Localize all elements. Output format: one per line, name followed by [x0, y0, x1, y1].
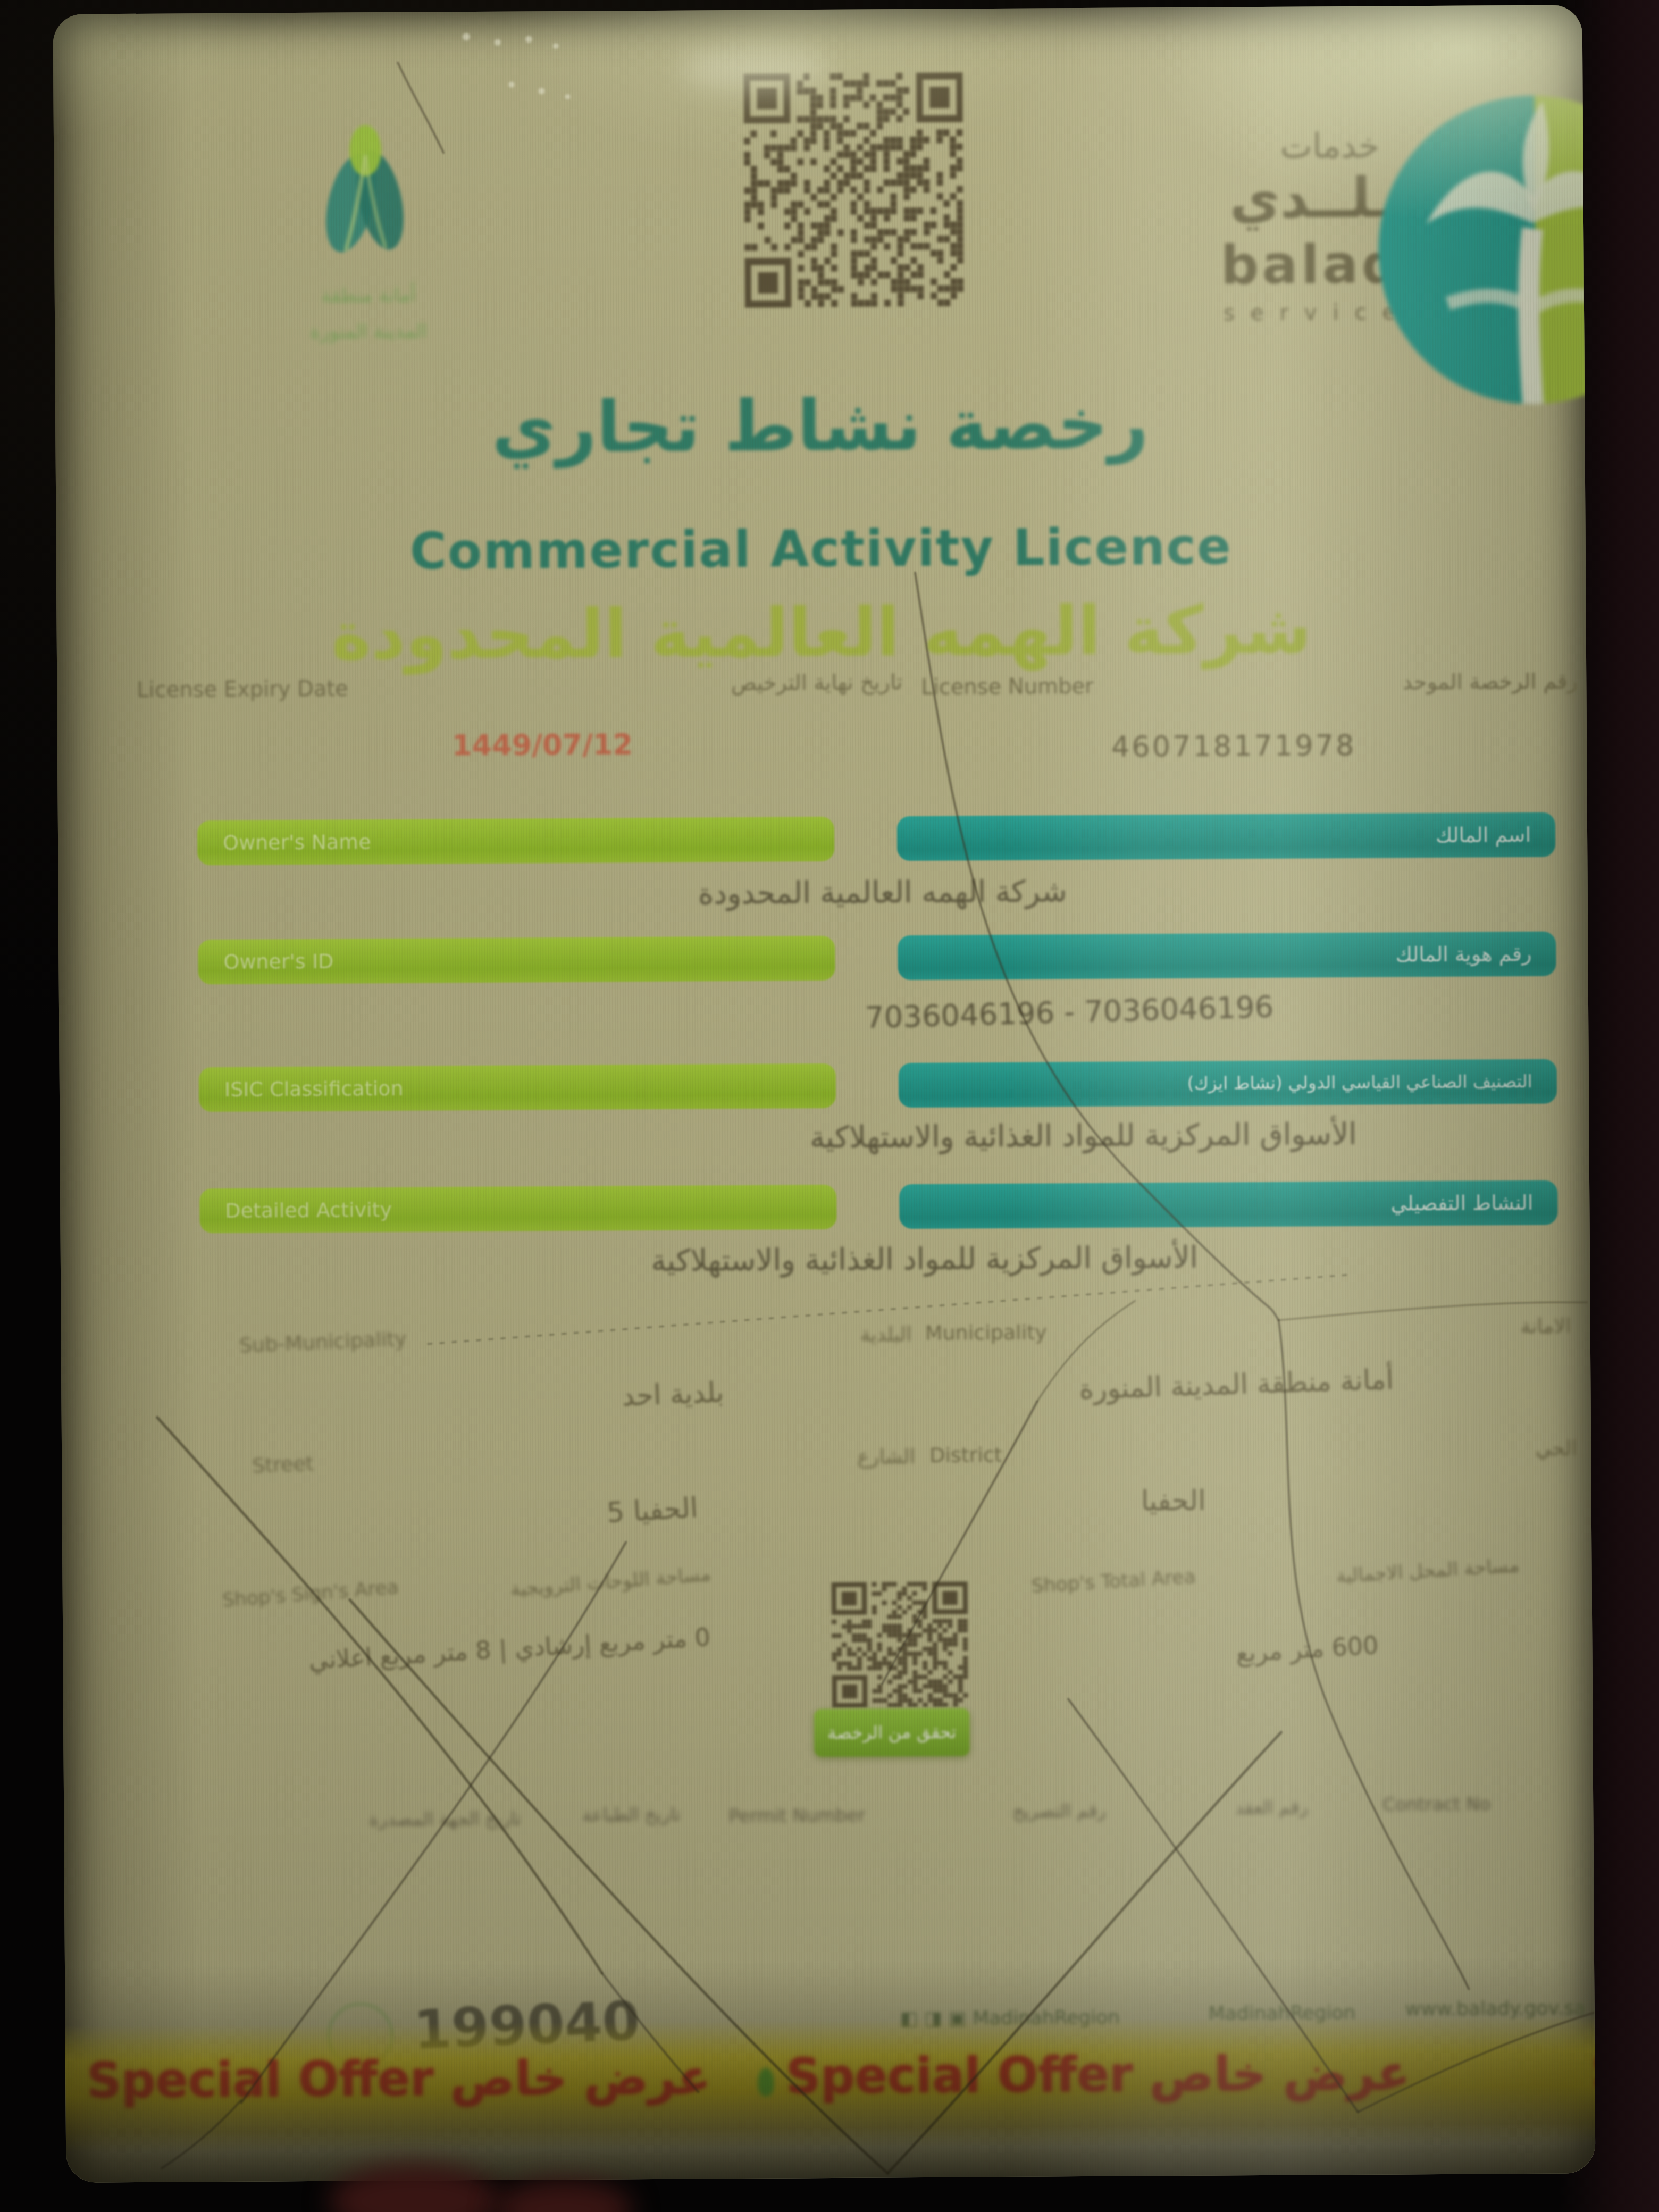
licence-screen: أمانة منطقة المدينة المنورة خدمات بــلــ…	[53, 5, 1596, 2182]
finger-shadow-2	[495, 2180, 633, 2212]
glass-cracks	[53, 5, 1596, 2182]
photo-of-cracked-screen: أمانة منطقة المدينة المنورة خدمات بــلــ…	[0, 0, 1659, 2212]
